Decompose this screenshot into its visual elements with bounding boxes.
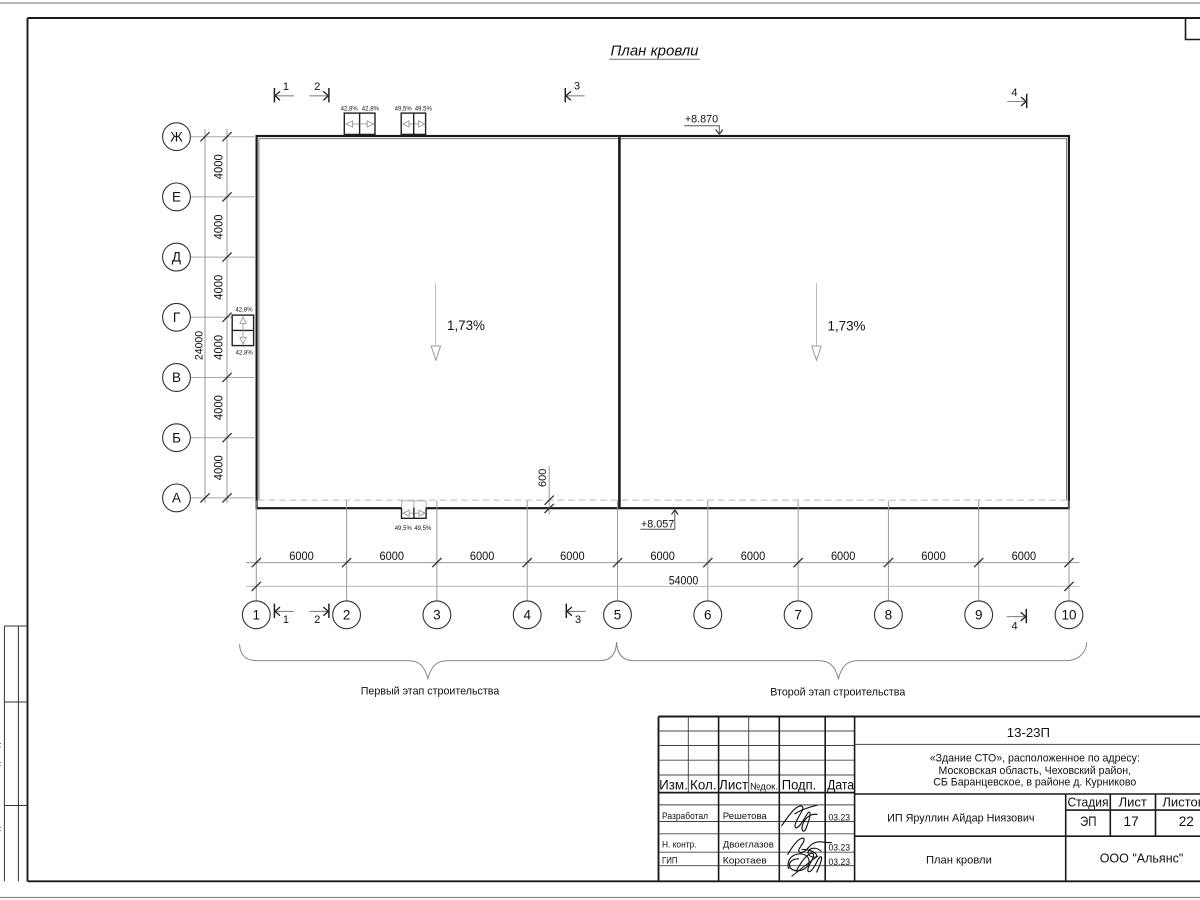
svg-text:+8.057: +8.057 xyxy=(641,518,674,530)
svg-text:4: 4 xyxy=(1011,87,1017,99)
svg-text:ИП Яруллин Айдар Ниязович: ИП Яруллин Айдар Ниязович xyxy=(887,812,1034,824)
svg-text:+8.870: +8.870 xyxy=(685,113,718,125)
svg-text:Н. контр.: Н. контр. xyxy=(662,840,697,851)
svg-text:Решетова: Решетова xyxy=(723,811,768,822)
svg-text:6000: 6000 xyxy=(921,549,946,563)
svg-text:6000: 6000 xyxy=(470,549,495,563)
svg-text:6000: 6000 xyxy=(380,549,405,563)
svg-text:Изм.: Изм. xyxy=(659,777,688,792)
svg-text:600: 600 xyxy=(537,469,549,487)
svg-text:Московская область, Чеховский: Московская область, Чеховский район, xyxy=(939,765,1132,777)
svg-text:5: 5 xyxy=(614,607,622,622)
svg-text:Г: Г xyxy=(173,310,181,325)
svg-text:Б: Б xyxy=(172,430,181,445)
svg-text:А: А xyxy=(172,491,181,506)
svg-text:4000: 4000 xyxy=(211,274,225,299)
svg-text:2: 2 xyxy=(343,607,351,622)
svg-text:Лист: Лист xyxy=(719,777,748,792)
svg-text:1: 1 xyxy=(283,614,289,626)
svg-text:10: 10 xyxy=(1061,607,1076,622)
svg-text:6000: 6000 xyxy=(560,549,585,563)
svg-text:42,8%: 42,8% xyxy=(235,306,252,313)
svg-text:Дата: Дата xyxy=(827,777,854,792)
svg-text:ЭП: ЭП xyxy=(1080,814,1097,829)
svg-text:2: 2 xyxy=(314,81,320,93)
svg-text:3: 3 xyxy=(433,607,441,622)
svg-text:План кровли: План кровли xyxy=(611,43,700,60)
svg-text:42,8%: 42,8% xyxy=(236,350,253,357)
svg-text:03.23: 03.23 xyxy=(829,842,851,853)
svg-text:6000: 6000 xyxy=(831,549,856,563)
svg-text:ООО "Альянс": ООО "Альянс" xyxy=(1100,852,1184,866)
svg-text:Стадия: Стадия xyxy=(1068,795,1109,810)
svg-text:ГИП: ГИП xyxy=(662,855,678,866)
svg-text:Лист: Лист xyxy=(1119,795,1147,810)
svg-text:Двоеглазов: Двоеглазов xyxy=(723,840,774,851)
svg-text:7: 7 xyxy=(794,607,802,622)
svg-text:42,8%: 42,8% xyxy=(362,106,379,113)
svg-text:4: 4 xyxy=(1011,621,1017,633)
svg-text:4000: 4000 xyxy=(211,154,225,179)
svg-text:№док.: №док. xyxy=(750,781,778,792)
svg-text:42,8%: 42,8% xyxy=(341,106,358,113)
svg-text:4000: 4000 xyxy=(211,335,225,360)
svg-text:План кровли: План кровли xyxy=(926,854,992,866)
svg-text:3: 3 xyxy=(574,81,580,93)
svg-text:49,5%: 49,5% xyxy=(395,106,412,113)
svg-text:Взам. инв. №: Взам. инв. № xyxy=(0,641,2,687)
svg-text:24000: 24000 xyxy=(194,331,206,360)
svg-text:4000: 4000 xyxy=(211,214,225,239)
svg-text:17: 17 xyxy=(1124,814,1139,829)
svg-text:Кол.: Кол. xyxy=(690,777,717,792)
svg-text:4000: 4000 xyxy=(211,455,225,480)
svg-text:13-23П: 13-23П xyxy=(1007,725,1050,740)
svg-text:1: 1 xyxy=(283,81,289,93)
svg-text:Ж: Ж xyxy=(170,129,183,144)
svg-text:22: 22 xyxy=(1179,814,1194,829)
svg-text:«Здание СТО», расположенное по: «Здание СТО», расположенное по адресу: xyxy=(930,753,1140,765)
svg-text:03.23: 03.23 xyxy=(829,813,851,824)
svg-text:1,73%: 1,73% xyxy=(828,319,866,334)
svg-text:4: 4 xyxy=(523,607,531,622)
svg-text:6000: 6000 xyxy=(741,549,766,563)
svg-text:Второй этап строительства: Второй этап строительства xyxy=(770,686,905,698)
svg-text:6000: 6000 xyxy=(1012,549,1037,563)
svg-text:6: 6 xyxy=(704,607,712,622)
svg-text:54000: 54000 xyxy=(669,573,699,587)
svg-text:4000: 4000 xyxy=(211,395,225,420)
svg-text:6000: 6000 xyxy=(650,549,675,563)
svg-text:Первый этап строительства: Первый этап строительства xyxy=(361,686,500,698)
svg-text:Инв. № подл.: Инв. № подл. xyxy=(0,820,2,867)
svg-text:В: В xyxy=(172,370,181,385)
svg-text:Подп. и дата: Подп. и дата xyxy=(0,731,2,776)
svg-text:1,73%: 1,73% xyxy=(447,318,485,333)
svg-text:Е: Е xyxy=(172,190,181,205)
svg-text:3: 3 xyxy=(575,614,581,626)
svg-text:6000: 6000 xyxy=(289,549,314,563)
svg-text:Коротаев: Коротаев xyxy=(723,855,767,866)
svg-text:Разработал: Разработал xyxy=(662,811,708,822)
svg-text:Д: Д xyxy=(172,250,181,265)
svg-text:Листов: Листов xyxy=(1162,795,1200,810)
svg-text:03.23: 03.23 xyxy=(829,857,851,868)
svg-text:9: 9 xyxy=(975,607,983,622)
svg-text:49,5%: 49,5% xyxy=(414,525,431,532)
svg-text:49,5%: 49,5% xyxy=(415,106,432,113)
svg-text:СБ Баранцевское, в районе д. К: СБ Баранцевское, в районе д. Курниково xyxy=(933,776,1136,788)
svg-text:49,5%: 49,5% xyxy=(395,525,412,532)
svg-text:1: 1 xyxy=(253,607,261,622)
svg-text:Подп.: Подп. xyxy=(782,777,817,792)
svg-text:8: 8 xyxy=(885,607,893,622)
svg-text:2: 2 xyxy=(314,614,320,626)
